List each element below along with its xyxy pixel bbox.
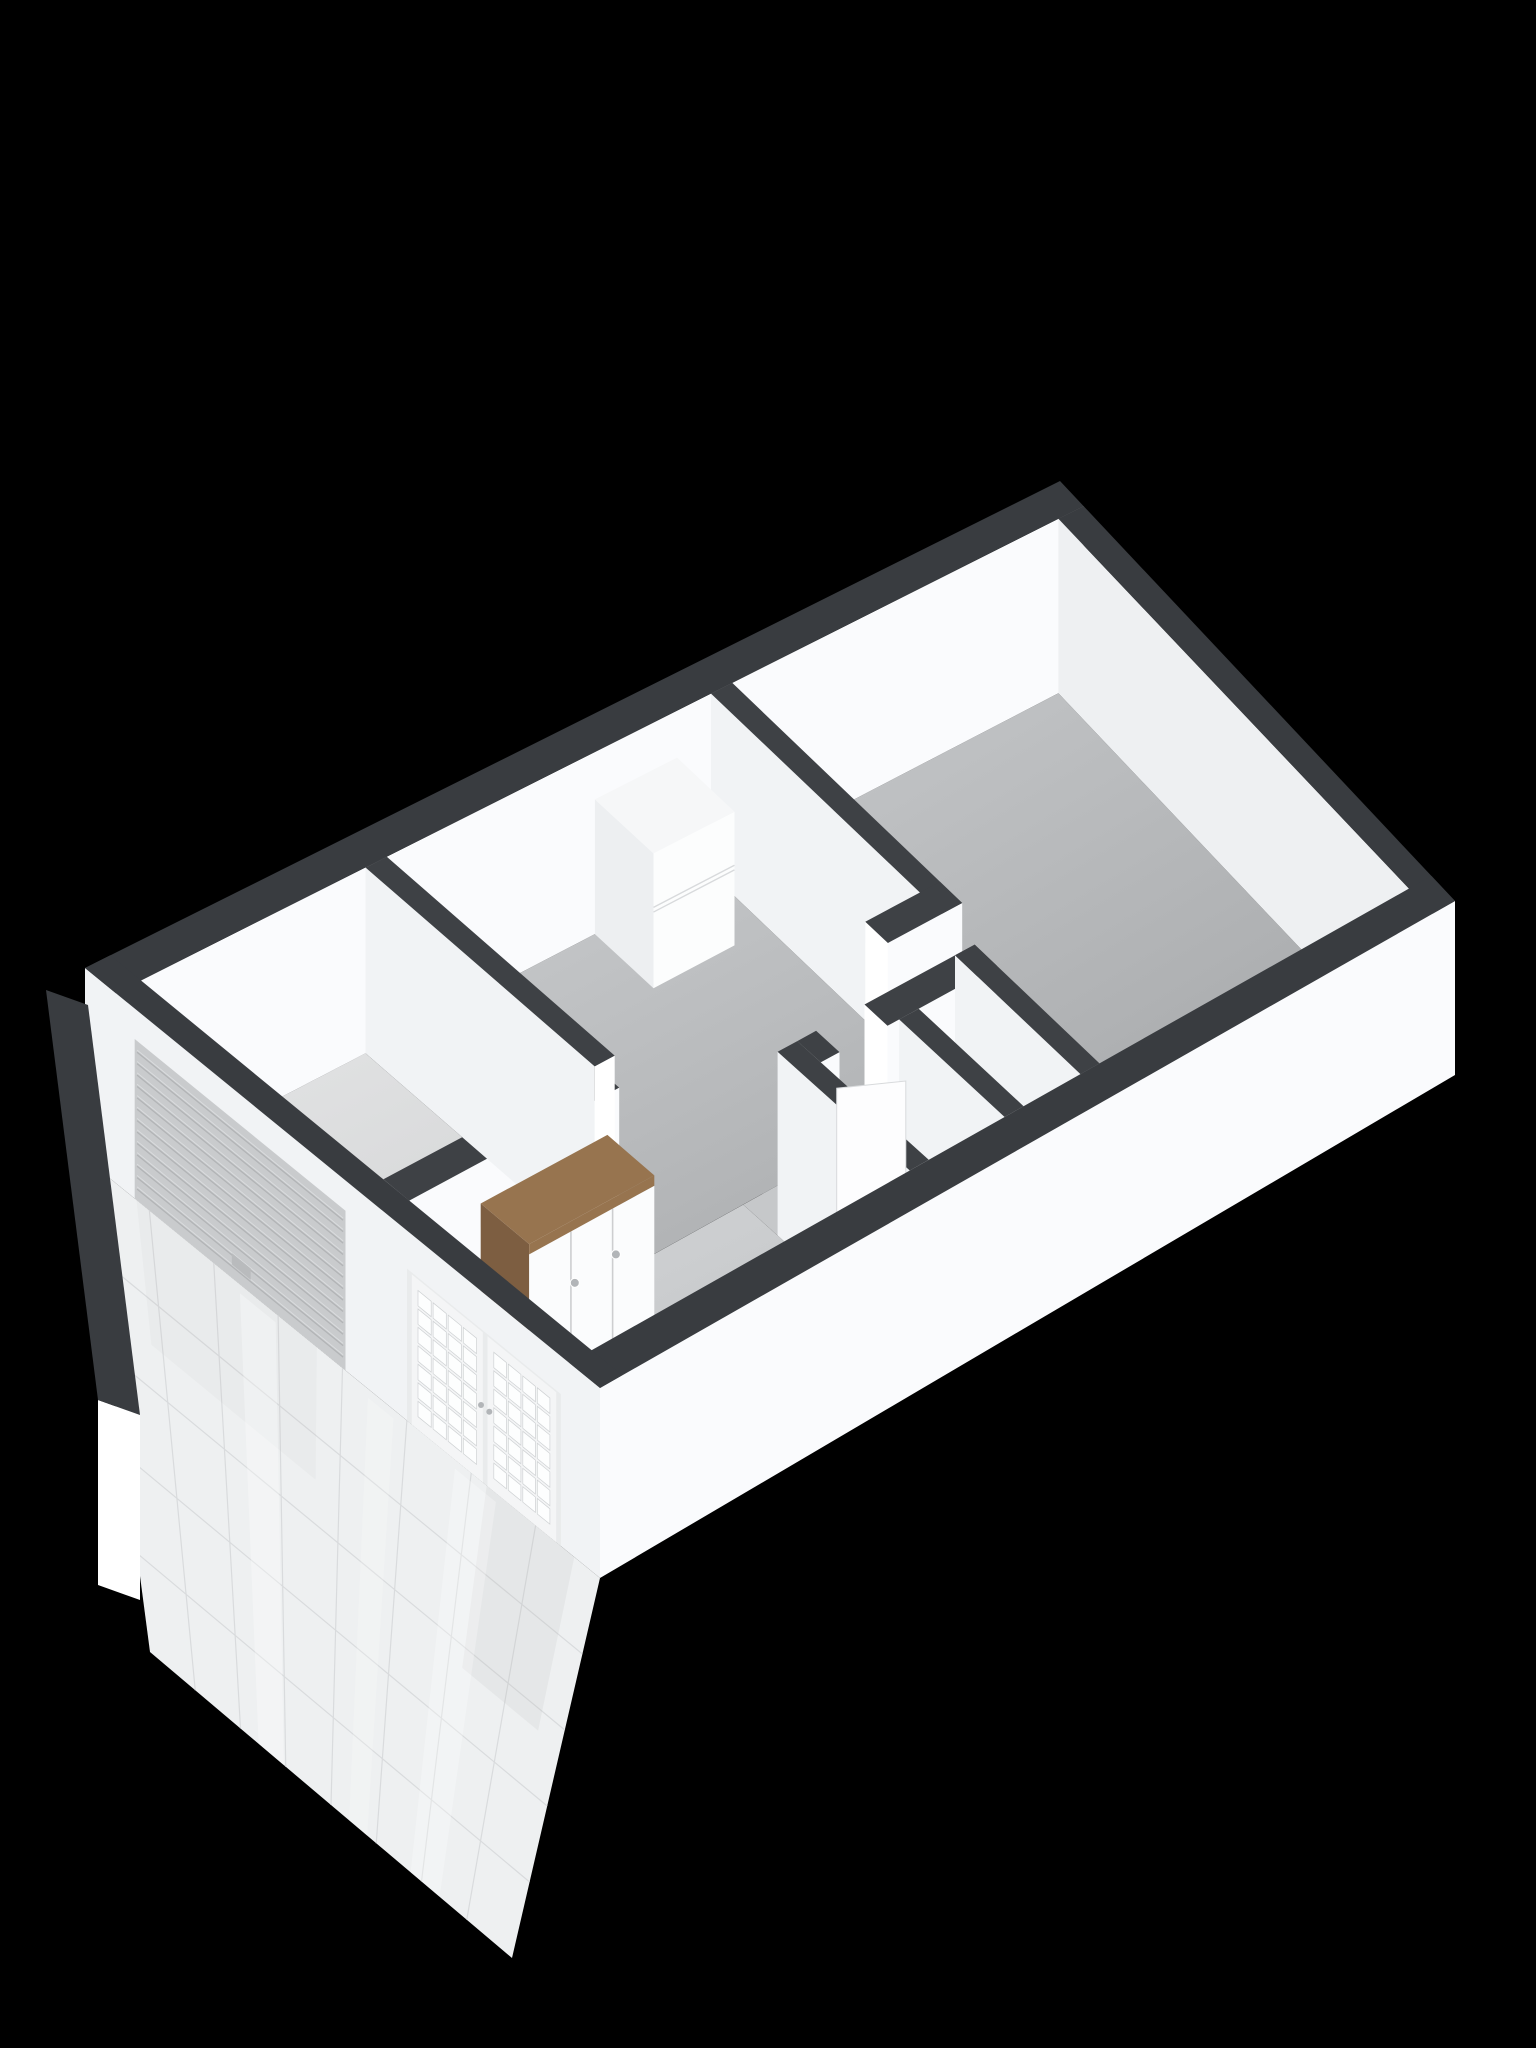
french-doors-handle-1 bbox=[486, 1409, 492, 1415]
floorplan-stage bbox=[0, 0, 1536, 2048]
french-doors-handle-0 bbox=[478, 1402, 484, 1408]
wardrobe-handle-0 bbox=[570, 1278, 579, 1287]
wardrobe-handle-1 bbox=[611, 1250, 620, 1259]
patio-side-wall-end bbox=[98, 1400, 140, 1600]
floorplan-3d-render bbox=[0, 0, 1536, 2048]
